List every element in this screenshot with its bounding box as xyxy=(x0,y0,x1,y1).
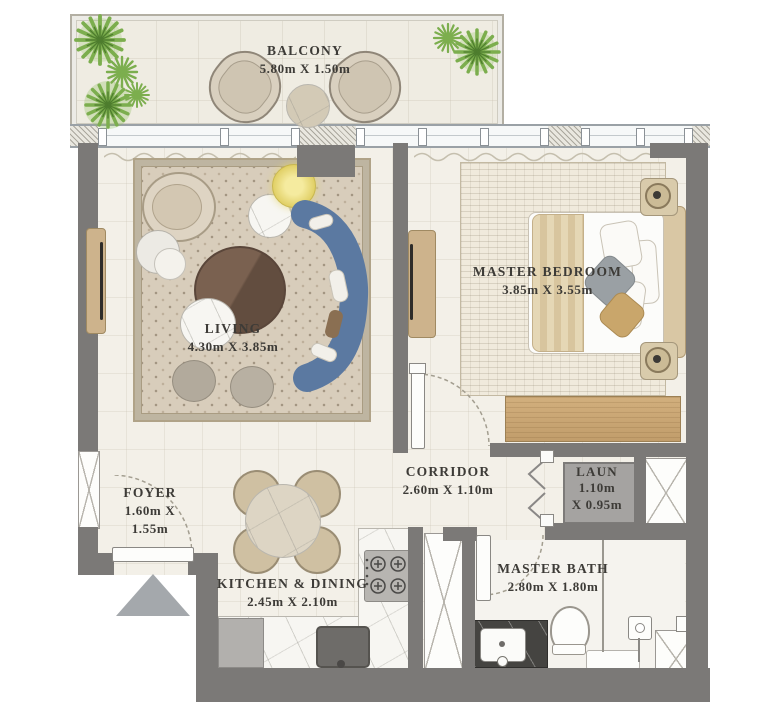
wall-pillar-top xyxy=(297,145,355,177)
table-lamp-dot xyxy=(653,191,661,199)
room-dims: 1.55m xyxy=(100,520,200,538)
bedroom-door-swing-arc xyxy=(417,374,491,448)
room-dims: X 0.95m xyxy=(540,497,654,513)
label-master-bath: MASTER BATH 2.80m X 1.80m xyxy=(458,560,648,596)
bed-bench xyxy=(505,396,681,442)
kitchen-faucet-icon xyxy=(337,660,345,668)
wall-laundry-bottom xyxy=(545,523,686,540)
label-master-bedroom: MASTER BEDROOM 3.85m X 3.55m xyxy=(450,263,645,299)
room-name: MASTER BEDROOM xyxy=(450,263,645,281)
wall-cabinet-left xyxy=(408,527,423,668)
room-dims: 4.30m X 3.85m xyxy=(148,338,318,356)
room-name: BALCONY xyxy=(205,42,405,60)
room-name: KITCHEN & DINING xyxy=(195,575,390,593)
door-frame xyxy=(540,450,554,463)
window-glass-line xyxy=(70,135,710,136)
room-dims: 1.10m xyxy=(540,480,654,496)
sink-drain-icon xyxy=(499,641,505,647)
wall-hatch xyxy=(548,126,581,146)
bath-mat xyxy=(586,650,640,670)
wall-right xyxy=(686,143,708,672)
tv-console-living xyxy=(86,228,106,334)
shower-pipe xyxy=(638,638,640,662)
wall-left-lower xyxy=(78,527,98,575)
wall-divider xyxy=(393,143,408,453)
room-dims: 2.60m X 1.10m xyxy=(368,481,528,499)
toilet-tank xyxy=(552,644,586,655)
room-dims: 5.80m X 1.50m xyxy=(205,60,405,78)
shower-control-dial-icon xyxy=(635,623,645,633)
bedroom-door-leaf xyxy=(411,371,425,449)
label-corridor: CORRIDOR 2.60m X 1.10m xyxy=(368,463,528,499)
tall-cabinet xyxy=(424,533,464,671)
curved-sofa xyxy=(281,198,373,394)
room-dims: 1.60m X xyxy=(100,502,200,520)
sink-faucet-icon xyxy=(497,656,508,667)
room-name: CORRIDOR xyxy=(368,463,528,481)
door-frame xyxy=(409,363,426,374)
shower-glass-partition xyxy=(602,540,604,652)
label-kitchen-dining: KITCHEN & DINING 2.45m X 2.10m xyxy=(195,575,390,611)
tv-icon xyxy=(410,244,413,320)
floor-plan: BALCONY 5.80m X 1.50m LIVING 4.30m X 3.8… xyxy=(0,0,766,727)
door-frame xyxy=(540,514,554,527)
label-laundry: LAUN 1.10m X 0.95m xyxy=(540,464,654,513)
pouf xyxy=(230,366,274,408)
room-dims: 3.85m X 3.55m xyxy=(450,281,645,299)
armchair-cushion xyxy=(152,184,202,230)
entry-door-leaf xyxy=(112,547,194,562)
room-name: FOYER xyxy=(100,484,200,502)
wall-bottom xyxy=(196,668,710,702)
wall-cabinet-right xyxy=(462,527,475,668)
label-foyer: FOYER 1.60m X 1.55m xyxy=(100,484,200,537)
room-dims: 2.80m X 1.80m xyxy=(458,578,648,596)
entry-arrow-icon xyxy=(116,574,190,616)
room-name: MASTER BATH xyxy=(458,560,648,578)
label-living: LIVING 4.30m X 3.85m xyxy=(148,320,318,356)
kitchen-appliance xyxy=(218,618,264,668)
window-mullion xyxy=(581,128,590,146)
pouf xyxy=(172,360,216,402)
window-mullion xyxy=(540,128,549,146)
room-name: LIVING xyxy=(148,320,318,338)
foyer-closet xyxy=(78,451,100,529)
wall-bedroom-bottom xyxy=(490,443,688,457)
tv-icon xyxy=(100,242,103,320)
label-balcony: BALCONY 5.80m X 1.50m xyxy=(205,42,405,78)
room-name: LAUN xyxy=(540,464,654,480)
wall-pillar-top-right xyxy=(650,143,688,158)
window-mullion xyxy=(636,128,645,146)
dining-table xyxy=(245,484,321,558)
side-table xyxy=(154,248,186,280)
table-lamp-dot xyxy=(653,355,661,363)
room-dims: 2.45m X 2.10m xyxy=(195,593,390,611)
